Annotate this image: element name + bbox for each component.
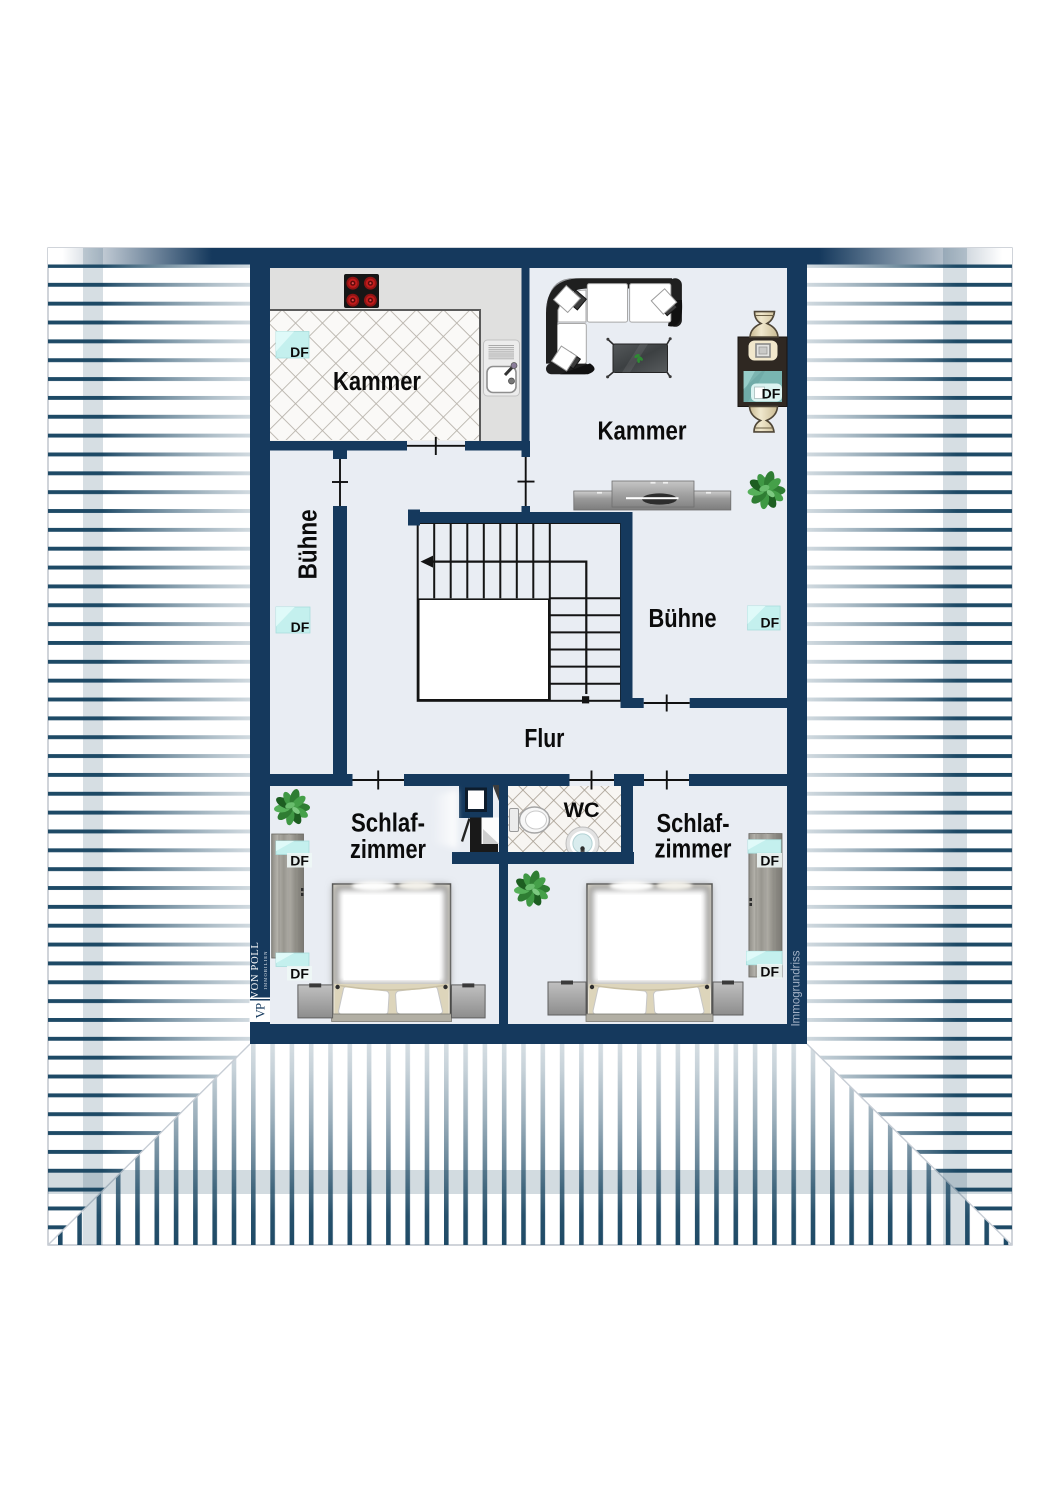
svg-text:Flur: Flur [524,725,564,753]
svg-text:zimmer: zimmer [655,836,732,864]
svg-text:VON POLL: VON POLL [250,941,261,998]
svg-text:Kammer: Kammer [598,418,687,446]
svg-text:DF: DF [290,966,309,982]
svg-text:DF: DF [760,964,779,980]
svg-text:Schlaf-: Schlaf- [657,810,730,838]
svg-text:DF: DF [290,853,309,869]
svg-text:DF: DF [290,344,309,360]
svg-text:DF: DF [760,615,779,631]
svg-text:IMMOBILIEN: IMMOBILIEN [263,950,268,989]
svg-text:Bühne: Bühne [295,509,323,579]
svg-text:Schlaf-: Schlaf- [351,810,425,838]
svg-text:Kammer: Kammer [333,368,421,396]
svg-text:DF: DF [760,853,779,869]
svg-text:VP: VP [252,1003,267,1018]
svg-text:zimmer: zimmer [350,836,426,864]
svg-text:Bühne: Bühne [649,605,717,633]
svg-text:WC: WC [564,798,600,822]
svg-text:DF: DF [762,386,781,402]
svg-text:Immogrundriss: Immogrundriss [791,950,803,1026]
svg-text:DF: DF [291,619,310,635]
